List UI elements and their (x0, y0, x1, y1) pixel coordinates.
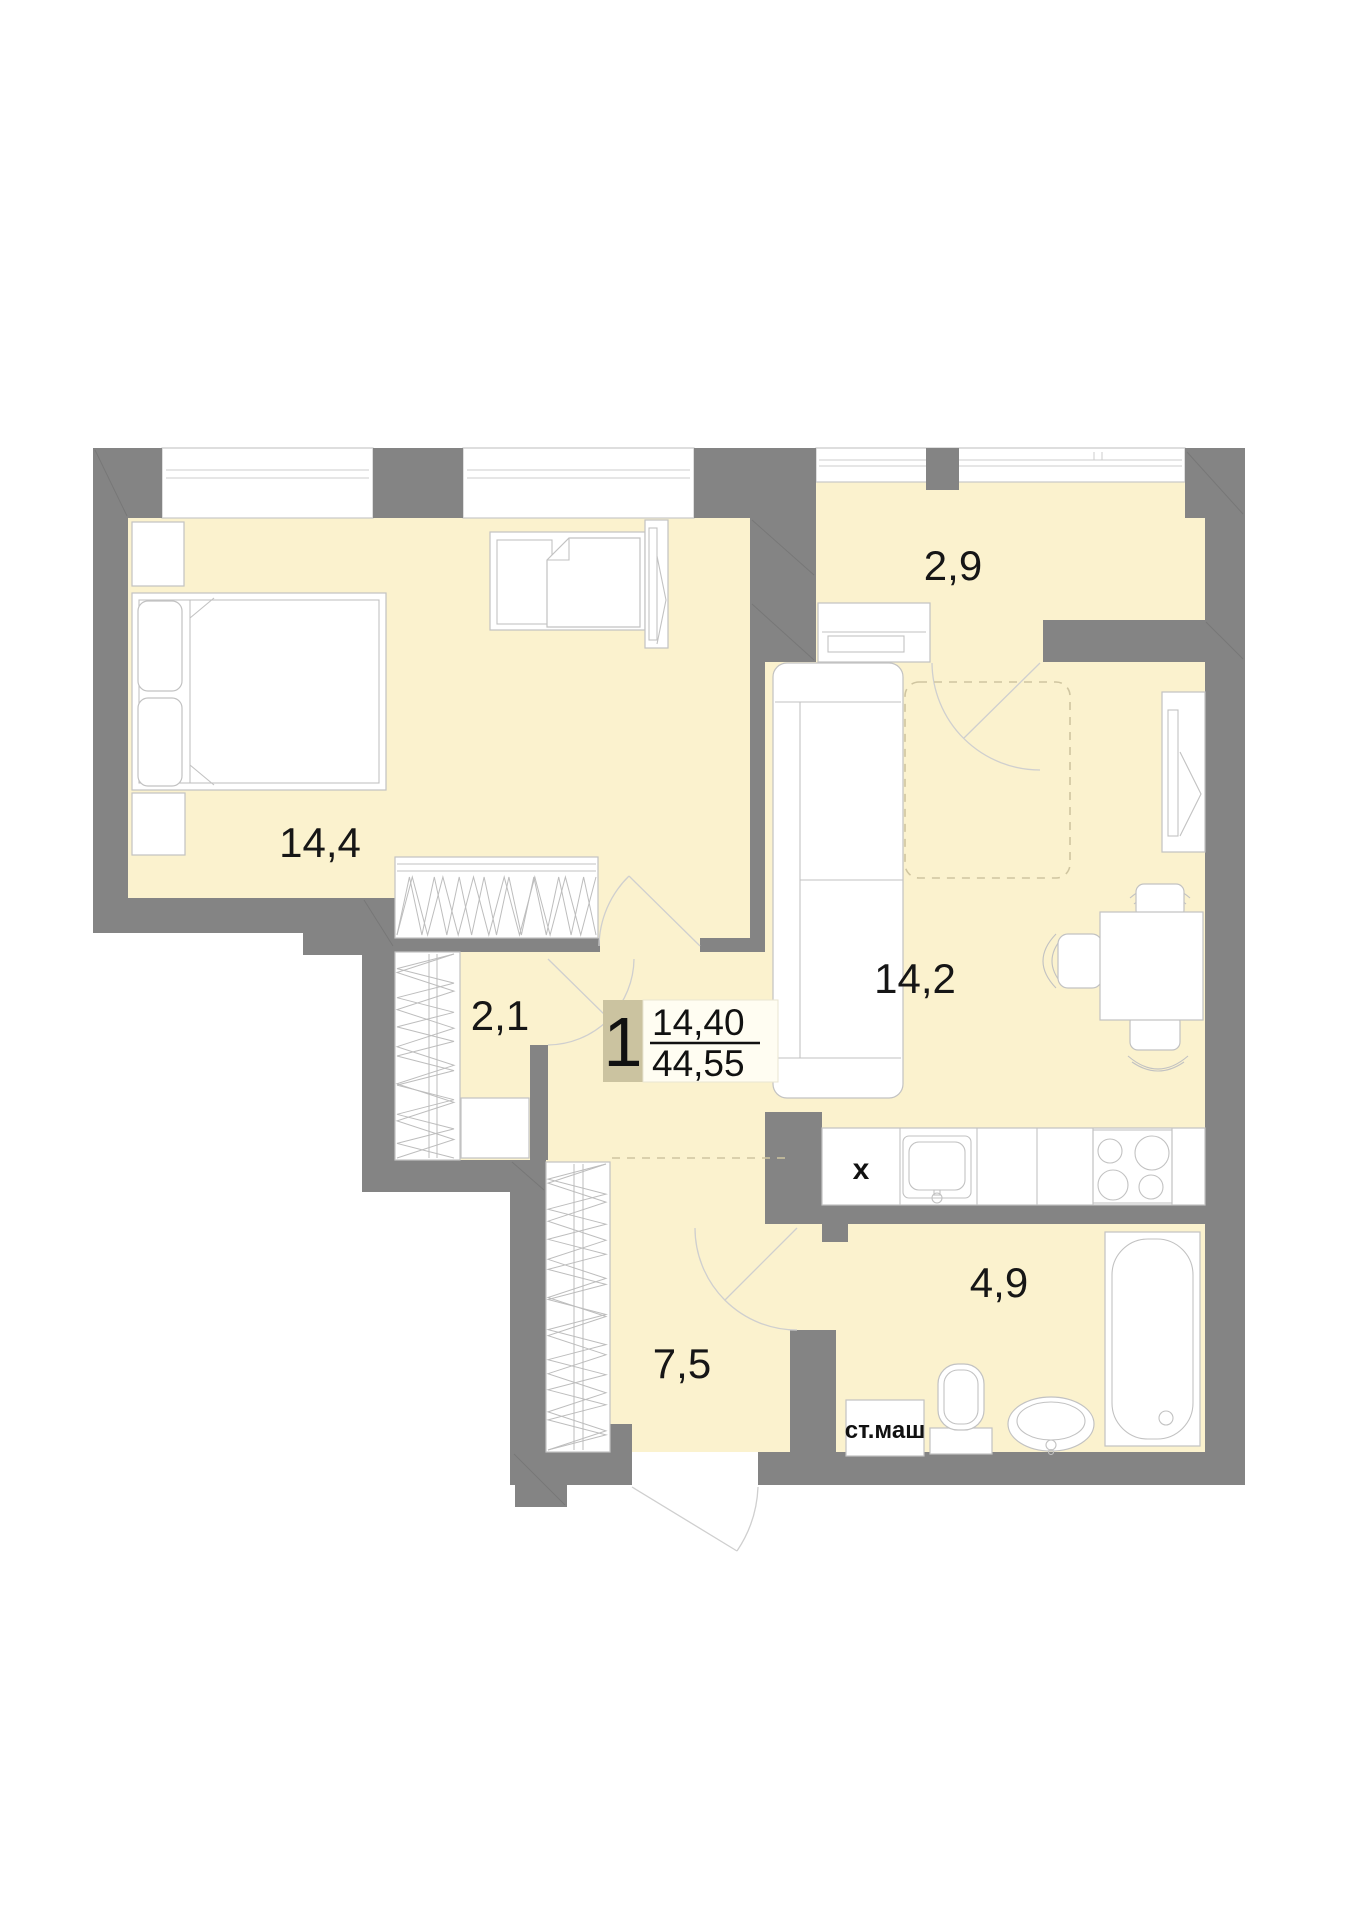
wardrobe-hallway (546, 1162, 610, 1452)
wall-kitchen-bath (822, 1205, 1205, 1224)
wall-top-mid-pier (373, 448, 463, 518)
floor-plan-page: x ст.маш (0, 0, 1357, 1920)
wall-hall-west (510, 1160, 546, 1485)
toilet-tank (930, 1428, 992, 1454)
toilet-bowl (938, 1364, 984, 1430)
wall-bedroom-balcony (750, 518, 816, 662)
wall-bottom (758, 1452, 1245, 1485)
bathtub (1105, 1232, 1200, 1446)
closet-cabinet (461, 1098, 529, 1158)
wall-bedroom-door-jamb (700, 938, 750, 952)
floor-plan: x ст.маш (0, 0, 1357, 1920)
wall-top-right-pier (694, 448, 816, 518)
bedroom-window-2 (463, 448, 694, 518)
wall-bedroom-door-strip (390, 938, 600, 952)
wall-bedroom-south (93, 898, 303, 933)
wash-basin (1008, 1397, 1094, 1451)
wall-bath-door-jamb (822, 1224, 848, 1242)
dining-table (1100, 912, 1203, 1020)
badge-rooms-count: 1 (604, 1003, 643, 1081)
wall-closet-east-bar (530, 1045, 548, 1160)
balcony-area-label: 2,9 (924, 542, 982, 589)
entry-door (632, 1487, 758, 1551)
bedroom-window-1 (162, 448, 373, 518)
wall-bath-west (790, 1330, 836, 1452)
closet-furniture (461, 1098, 529, 1158)
wall-right (1205, 448, 1245, 1485)
nightstand-bottom (132, 793, 185, 855)
wall-left (93, 448, 128, 933)
wall-closet-west (362, 898, 395, 1160)
badge-living-area: 14,40 (652, 1002, 745, 1043)
wall-balcony-living (1043, 620, 1205, 662)
washing-machine-label: ст.маш (845, 1417, 925, 1444)
wall-hall-step (362, 1160, 510, 1192)
nightstand-top (132, 522, 184, 586)
balcony-glazing (816, 448, 1185, 482)
badge-total-area: 44,55 (652, 1043, 745, 1084)
kitchen: x (822, 1128, 1205, 1205)
wardrobe-closet (395, 952, 460, 1160)
bedroom-area-label: 14,4 (279, 819, 361, 866)
living-area-label: 14,2 (874, 955, 956, 1002)
hallway-area-label: 7,5 (653, 1340, 711, 1387)
wall-bedroom-living-partition (750, 662, 765, 952)
wardrobe-bedroom (395, 857, 598, 938)
bathroom-area-label: 4,9 (970, 1259, 1028, 1306)
pillow (138, 601, 182, 691)
kitchen-counter (822, 1128, 1205, 1205)
closet-area-label: 2,1 (471, 992, 529, 1039)
wall-balcony-pier (926, 448, 959, 490)
unit-badge: 1 14,40 44,55 (603, 1000, 778, 1084)
fridge-marker: x (853, 1153, 870, 1186)
pillow (138, 698, 182, 786)
desk-top (547, 538, 640, 627)
wall-kitchen-west (765, 1112, 822, 1224)
wall-bottom-protrusion (515, 1485, 567, 1507)
